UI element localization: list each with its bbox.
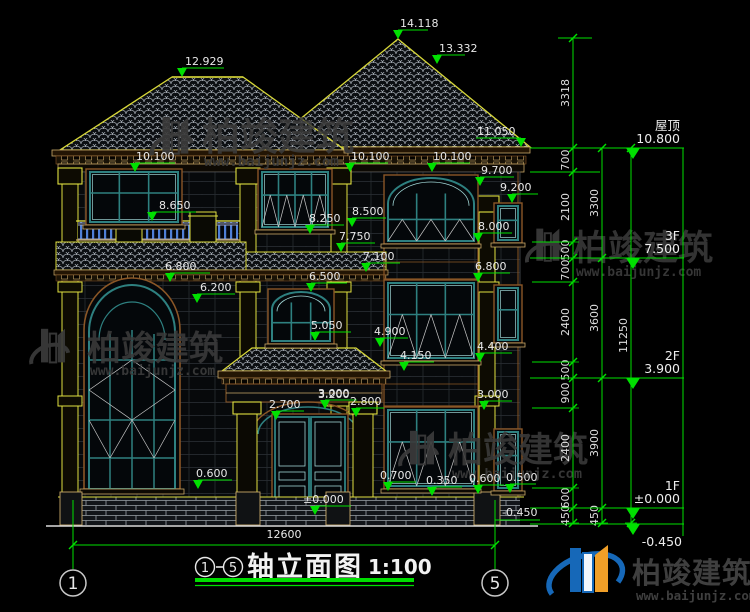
elevation-drawing: 柏竣建筑 www.baijunjz.com 柏竣建筑 www.baijunjz.… [0,0,750,612]
overall-dimension: 12600 [69,528,499,549]
free-label: 3.200 [318,388,350,401]
title-scale: 1:100 [368,555,432,579]
chain-value: 500 [559,240,572,261]
window-frame [90,172,178,222]
level-value: 3.900 [644,361,680,376]
level-value: 7.500 [644,241,680,256]
marker-value: 4.400 [477,340,509,353]
level-triangle [626,508,640,519]
marker-value: 13.332 [439,42,478,55]
level-triangle [626,148,640,159]
title-axis-to: 5 [229,561,237,576]
watermark-brand: 柏竣建筑 [573,228,713,269]
title-axis-from: 1 [201,561,209,576]
chain-value: 500 [559,360,572,381]
window-sill [491,243,525,247]
marker-value: 8.250 [309,212,341,225]
elevation-marker: 12.929 [177,55,224,77]
drawing-title: 1 5 轴立面图 1:100 [195,551,432,586]
marker-value: 0.600 [196,467,228,480]
elevation-marker: 13.332 [432,42,478,64]
marker-value: 5.050 [311,319,343,332]
marker-value: 6.800 [165,260,197,273]
marker-value: 2.800 [350,395,382,408]
marker-value: 4.900 [374,325,406,338]
marker-value: 10.100 [433,150,472,163]
marker-triangle [393,30,403,39]
window-sill [381,244,481,248]
elevation-marker: 14.118 [393,17,439,39]
chain-value: 3300 [588,189,601,217]
marker-triangle [432,55,442,64]
window [381,175,481,248]
chain-value: 3600 [588,304,601,332]
brick-base [58,492,524,525]
logo-site: www.baijunjz.com [636,588,750,603]
marker-value: 8.000 [478,220,510,233]
axis-label: 1 [68,574,79,594]
marker-value: 7.100 [363,250,395,263]
watermark-brand: 柏竣建筑 [202,115,354,159]
cad-canvas: 柏竣建筑 www.baijunjz.com 柏竣建筑 www.baijunjz.… [0,0,750,612]
logo-brand: 柏竣建筑 [632,556,750,590]
marker-value: 6.500 [309,270,341,283]
tall-arch-window [80,278,184,494]
level-triangle [626,378,640,389]
watermark-site: www.baijunjz.com [90,364,215,379]
marker-value: 4.150 [400,349,432,362]
level-value: ±0.000 [634,491,680,506]
marker-value: 8.500 [352,205,384,218]
window [491,285,525,347]
chain-value: 2400 [559,308,572,336]
dim-chain: 330036003900450 [588,144,608,527]
marker-value: 14.118 [400,17,439,30]
chain-value: 700 [559,260,572,281]
logo-bar-blue [570,548,581,592]
marker-value: 12.929 [185,55,224,68]
window-sill [491,491,525,495]
window-frame [498,288,518,340]
marker-value: 10.100 [136,150,175,163]
marker-value: 6.200 [200,281,232,294]
chain-value: 700 [559,150,572,171]
window-frame [388,178,474,241]
level-value: 10.800 [636,131,680,146]
marker-value: 7.750 [339,230,371,243]
marker-value: 9.700 [481,164,513,177]
watermark-left: 柏竣建筑 www.baijunjz.com [31,329,223,379]
logo-bar-white [583,553,593,592]
watermark-brand: 柏竣建筑 [87,329,223,369]
marker-value: 3.000 [477,388,509,401]
level-triangle [626,524,640,535]
window-frame [388,283,474,358]
marker-value: 6.800 [475,260,507,273]
title-underline-thick [195,578,414,582]
level-marker: 屋顶10.800 [622,118,684,159]
level-marker: -0.450 [622,524,684,549]
window-sill [265,344,337,348]
marker-value: 2.700 [269,398,301,411]
marker-value: 11.050 [477,125,516,138]
chain-value: 3318 [559,79,572,107]
level-value: -0.450 [642,534,682,549]
marker-value: 0.600 [469,472,501,485]
marker-value: 0.500 [506,471,538,484]
axis-label: 5 [490,574,501,594]
marker-value: 8.650 [159,199,191,212]
window-frame [272,292,330,341]
company-logo: 柏竣建筑 www.baijunjz.com [549,545,750,603]
marker-value: 9.200 [500,181,532,194]
marker-value: 10.100 [351,150,390,163]
marker-value: 0.700 [380,469,412,482]
watermark-site: www.baijunjz.com [204,154,339,170]
window-sill [255,230,335,234]
window-sill [83,225,185,229]
marker-value: 0.350 [426,474,458,487]
marker-value: ±0.000 [303,493,344,506]
chain-value: 2400 [559,434,572,462]
chain-value: 2100 [559,193,572,221]
dim-value: 12600 [267,528,302,541]
dim-chain: 11250 [617,144,637,527]
marker-triangle [177,68,187,77]
chain-value: 11250 [617,318,630,353]
chain-value: 3900 [588,429,601,457]
chain-value: 900 [559,383,572,404]
watermark-right: 柏竣建筑 www.baijunjz.com [527,228,713,280]
